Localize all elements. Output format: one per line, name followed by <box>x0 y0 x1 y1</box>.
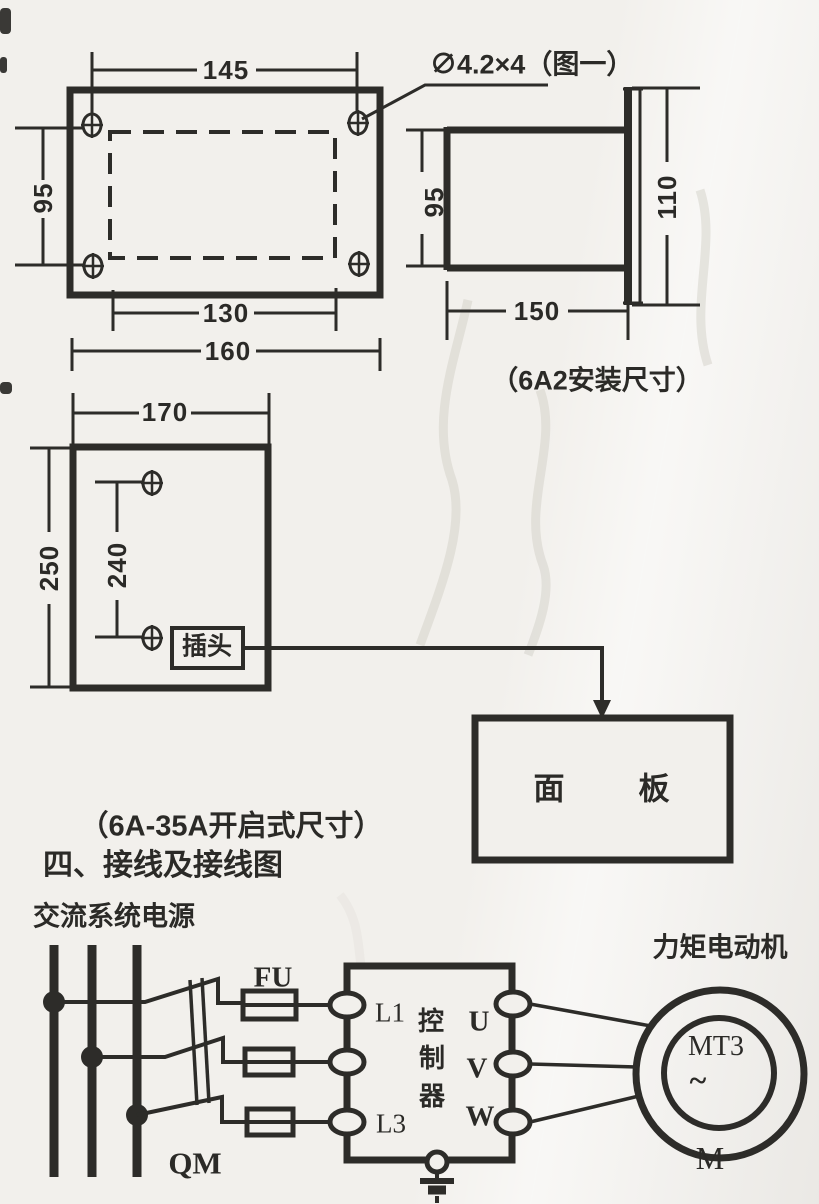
terminal-v-label: V <box>467 1055 488 1084</box>
dim-depth-label: 150 <box>514 298 560 324</box>
plug-to-panel-line <box>243 648 602 702</box>
section-heading: 四、接线及接线图 <box>43 851 283 881</box>
dim-width-label: 170 <box>142 399 188 425</box>
plug-label: 插头 <box>182 635 232 660</box>
terminal-l3-label: L3 <box>376 1111 406 1138</box>
terminal-u-label: U <box>469 1008 490 1037</box>
motor-phase-symbol: ~ <box>690 1064 707 1096</box>
motor-symbol <box>636 990 804 1158</box>
fuse-label: FU <box>254 964 293 993</box>
switch-gang-bar <box>190 978 209 1105</box>
panel-label-char1: 面 <box>534 774 565 805</box>
controller-label-char2: 制 <box>419 1045 445 1071</box>
mounting-hole-icon <box>143 472 161 649</box>
ground-icon <box>420 1152 454 1203</box>
mounting-hole-icon <box>83 112 368 277</box>
scanned-manual-page: 145 95 130 160 ∅4.2×4（图一） 95 110 150 （6A… <box>0 0 819 1204</box>
motor-letter-label: M <box>696 1142 724 1174</box>
front-view-drawing <box>15 52 548 371</box>
dim-inner-width-label: 130 <box>203 300 249 326</box>
dim-height-label: 250 <box>36 545 62 591</box>
diagram-linework <box>0 0 819 1204</box>
dim-hole-spacing-label: 240 <box>104 542 130 588</box>
dim-panel-height-label: 110 <box>654 175 680 220</box>
terminal-l1-label: L1 <box>375 1000 405 1027</box>
power-source-label: 交流系统电源 <box>33 904 195 931</box>
switch-poles <box>54 979 247 1122</box>
motor-wires <box>530 1004 651 1122</box>
switch-label: QM <box>168 1148 221 1179</box>
dim-body-height-label: 95 <box>421 187 447 218</box>
panel-box <box>475 718 730 860</box>
dim-hole-height-label: 95 <box>30 183 56 214</box>
controller-label-char3: 器 <box>419 1083 445 1109</box>
dim-hole-width-label: 145 <box>203 57 249 83</box>
scan-artifacts <box>0 8 12 394</box>
panel-label-char2: 板 <box>639 774 670 805</box>
motor-title-label: 力矩电动机 <box>653 935 788 962</box>
terminal-w-label: W <box>466 1103 495 1132</box>
open-view-caption: （6A-35A开启式尺寸） <box>80 813 383 842</box>
annotation-leader <box>362 85 548 119</box>
motor-model-label: MT3 <box>688 1033 744 1061</box>
side-view-caption: （6A2安装尺寸） <box>491 368 703 395</box>
dim-outer-width-label: 160 <box>205 338 251 364</box>
hole-spec-annotation: ∅4.2×4（图一） <box>430 52 633 79</box>
controller-label-char1: 控 <box>418 1008 444 1034</box>
